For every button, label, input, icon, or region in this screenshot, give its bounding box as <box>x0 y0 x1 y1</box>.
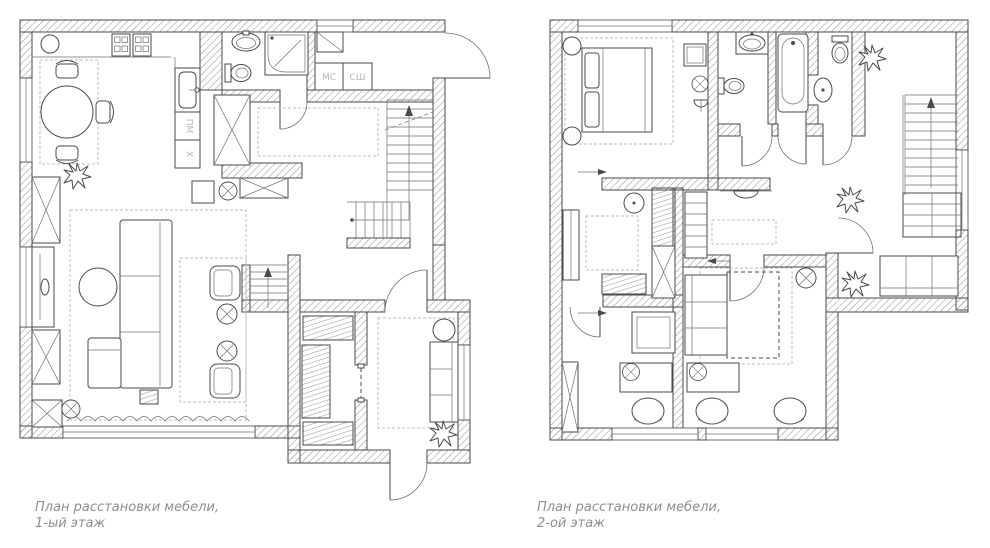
side-stool <box>192 181 214 203</box>
desk-chair <box>696 398 728 424</box>
wc-room <box>814 36 848 102</box>
fridge-box: X <box>175 140 200 168</box>
lamp-icon <box>219 182 237 200</box>
toilet <box>832 36 848 63</box>
armchair <box>210 364 240 398</box>
floor1-walls <box>20 20 470 463</box>
wardrobe <box>32 177 60 243</box>
shelf-unit <box>685 192 707 258</box>
sink <box>232 31 260 51</box>
bath-room <box>778 34 808 112</box>
closet-shelf <box>303 316 353 340</box>
low-cabinet <box>240 178 288 198</box>
window-bench <box>880 256 958 296</box>
wardrobe <box>652 246 675 298</box>
washing-machine-label: МС <box>322 73 336 83</box>
wall-fixture <box>694 100 708 112</box>
entry-door-side <box>445 33 490 78</box>
hallway-2f <box>712 191 776 244</box>
bathroom-2f <box>718 32 768 94</box>
side-table-icon <box>217 304 237 324</box>
floor2-caption-line2: 2-ой этаж <box>537 516 605 531</box>
window <box>612 428 698 440</box>
toilet <box>718 78 744 94</box>
stool <box>41 35 59 53</box>
living-room <box>32 177 249 427</box>
toilet <box>225 64 251 82</box>
boiler-icon <box>692 76 708 92</box>
plant-icon <box>430 421 457 447</box>
dishwasher-box: ПМ <box>175 112 200 140</box>
desk-chair <box>774 398 806 424</box>
desk-lamp-icon <box>690 364 707 381</box>
round-table <box>624 193 644 213</box>
stairwell-opening <box>903 193 961 237</box>
dining-chair <box>96 101 114 123</box>
bath-door <box>778 136 806 164</box>
drying-cabinet-box: СШ <box>343 63 372 90</box>
wardrobe <box>562 362 578 432</box>
landing-door <box>838 218 873 253</box>
bedroom2-rug <box>586 216 638 270</box>
radiator <box>67 417 249 422</box>
bedroom-3 <box>685 268 816 424</box>
closet-rail <box>652 188 675 246</box>
side-table-icon <box>217 341 237 361</box>
window <box>317 20 353 32</box>
desk-chair <box>632 398 664 424</box>
sliding-door <box>358 364 364 402</box>
floor-lamp-icon <box>796 268 816 288</box>
window <box>63 426 255 438</box>
bathtub <box>778 34 808 112</box>
shower <box>265 32 308 75</box>
corner-sink <box>814 78 832 102</box>
study-door <box>570 307 600 337</box>
hall-door <box>385 270 427 312</box>
entry-bench <box>430 342 458 422</box>
tall-cabinet <box>214 95 250 165</box>
hob <box>112 34 151 56</box>
armchair <box>210 266 240 300</box>
dining-chair <box>56 146 78 164</box>
floor-plans-page: ПМ X МС СШ <box>0 0 990 548</box>
wardrobe-room <box>302 316 353 445</box>
round-table <box>433 319 455 341</box>
open-wardrobe <box>602 274 646 294</box>
coffee-table <box>79 268 117 306</box>
dresser <box>563 210 579 280</box>
plant-icon <box>64 163 91 189</box>
shelf-unit <box>317 32 343 52</box>
master-bedroom <box>563 37 708 145</box>
floor-plans-drawing: ПМ X МС СШ <box>0 0 990 548</box>
wardrobe <box>32 330 60 384</box>
pouf <box>684 44 706 66</box>
floor-lamp-icon <box>62 400 80 418</box>
window <box>20 247 32 327</box>
floor-plan-1: ПМ X МС СШ <box>20 20 490 500</box>
sofa-bed <box>685 272 779 358</box>
sofa <box>88 220 172 404</box>
tv-unit <box>32 247 54 327</box>
corridor-rug <box>258 108 378 156</box>
hall-rug <box>712 220 776 244</box>
floor2-caption-line1: План расстановки мебели, <box>537 500 721 515</box>
drying-cabinet-label: СШ <box>350 73 366 83</box>
closet-rail <box>302 345 330 418</box>
kitchen-sink <box>175 68 200 112</box>
wardrobe <box>32 400 62 427</box>
closet-shelf <box>303 422 353 445</box>
fold-out-section <box>727 272 779 358</box>
fridge-label: X <box>184 151 194 157</box>
window <box>20 78 32 162</box>
nightstand <box>563 127 581 145</box>
cabinet <box>632 312 675 353</box>
staircase-upper <box>903 95 958 195</box>
double-bed <box>582 48 652 132</box>
corner-furniture <box>192 178 288 203</box>
nightstand <box>563 37 581 55</box>
sink <box>736 32 768 54</box>
console-mirror <box>720 191 772 198</box>
dining-table <box>41 86 93 138</box>
entry-hall <box>378 318 458 447</box>
floor1-caption-line1: План расстановки мебели, <box>35 500 219 515</box>
window <box>706 428 778 440</box>
kitchen-dining-area: ПМ X <box>32 34 200 189</box>
window <box>956 150 968 230</box>
ottoman <box>140 390 158 404</box>
window <box>578 20 672 32</box>
utility-closets: МС СШ <box>315 32 372 90</box>
bathroom-1f <box>225 31 308 82</box>
floor1-caption-line2: 1-ый этаж <box>35 516 105 531</box>
bathroom-door <box>280 102 307 129</box>
bathroom-door <box>742 136 772 166</box>
window <box>458 345 470 420</box>
dining-chair <box>56 61 78 79</box>
captions: План расстановки мебели, 1-ый этаж План … <box>35 500 721 531</box>
desk-lamp-icon <box>623 364 640 381</box>
study-room-1 <box>562 312 675 432</box>
staircase-main <box>347 100 433 238</box>
wc-door <box>823 136 852 165</box>
plant-icon <box>837 187 864 213</box>
plant-icon <box>842 271 869 297</box>
dishwasher-label: ПМ <box>184 119 194 134</box>
floor-plan-2 <box>550 20 968 440</box>
washing-machine-box: МС <box>315 63 343 90</box>
entry-door-main <box>390 463 427 500</box>
